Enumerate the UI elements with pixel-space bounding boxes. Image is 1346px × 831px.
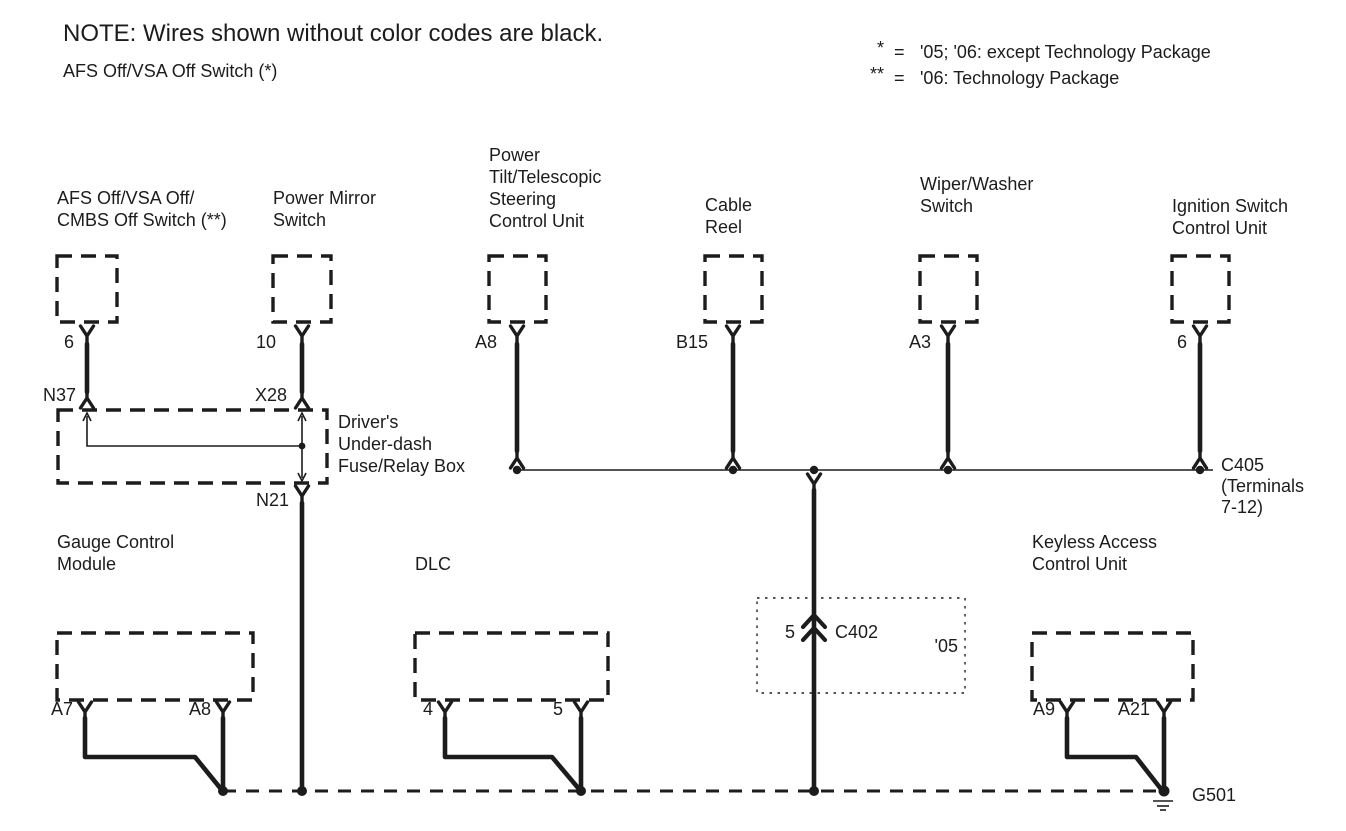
dlc-4-ground-wire — [445, 718, 579, 789]
ignition-pin-label: 6 — [1177, 332, 1187, 352]
ground-point-dot — [1159, 786, 1170, 797]
afs-pin-label: 6 — [64, 332, 74, 352]
legend-star-symbol: * — [877, 38, 884, 58]
subtitle-text: AFS Off/VSA Off Switch (*) — [63, 61, 277, 81]
gauge-label-line1: Gauge Control — [57, 532, 174, 552]
c405-label-line2: (Terminals — [1221, 476, 1304, 496]
component-ignition-switch-control-unit: Ignition Switch Control Unit 6 — [1172, 196, 1288, 468]
c402-name-label: C402 — [835, 622, 878, 642]
cable-reel-pin-label: B15 — [676, 332, 708, 352]
mirror-box — [273, 256, 331, 322]
cable-reel-label-line1: Cable — [705, 195, 752, 215]
legend: * = '05; '06: except Technology Package … — [870, 38, 1211, 88]
component-gauge-control-module: Gauge Control Module A7 A8 — [51, 532, 253, 789]
wiring-diagram-page: NOTE: Wires shown without color codes ar… — [0, 0, 1346, 831]
steering-label-line2: Tilt/Telescopic — [489, 167, 601, 187]
afs-switch-label-line2: CMBS Off Switch (**) — [57, 210, 227, 230]
ground-junction-dot-gauge — [218, 786, 228, 796]
n37-connector-label: N37 — [43, 385, 76, 405]
keyless-pin-a9-label: A9 — [1033, 699, 1055, 719]
mirror-label-line2: Switch — [273, 210, 326, 230]
c402-variant-label: '05 — [935, 636, 958, 656]
afs-pin-connector-icon — [81, 326, 94, 344]
legend-star-text: '05; '06: except Technology Package — [920, 42, 1211, 62]
keyless-pin-a21-label: A21 — [1118, 699, 1150, 719]
c405-label-line1: C405 — [1221, 455, 1264, 475]
dlc-pin-5-label: 5 — [553, 699, 563, 719]
wiper-label-line1: Wiper/Washer — [920, 174, 1033, 194]
wiper-label-line2: Switch — [920, 196, 973, 216]
legend-doublestar-equals: = — [894, 68, 905, 88]
dlc-pin-4-label: 4 — [423, 699, 433, 719]
steering-bus-connector-icon — [511, 450, 524, 468]
steering-box — [489, 256, 546, 322]
wiper-box — [920, 256, 977, 322]
cable-reel-label-line2: Reel — [705, 217, 742, 237]
bus-junction-dot-wiper — [944, 466, 952, 474]
wiper-pin-label: A3 — [909, 332, 931, 352]
bus-junction-dot-ignition — [1196, 466, 1204, 474]
bus-junction-dot-cable-reel — [729, 466, 737, 474]
keyless-label-line2: Control Unit — [1032, 554, 1127, 574]
component-steering-control-unit: Power Tilt/Telescopic Steering Control U… — [475, 145, 601, 468]
afs-switch-label-line1: AFS Off/VSA Off/ — [57, 188, 194, 208]
mirror-pin-connector-icon — [296, 326, 309, 344]
bus-junction-dot-branch — [810, 466, 818, 474]
gauge-a7-ground-wire — [85, 718, 221, 789]
component-dlc: DLC 4 5 — [415, 554, 608, 789]
n37-connector-icon — [81, 390, 94, 408]
n21-connector-label: N21 — [256, 490, 289, 510]
ignition-label-line1: Ignition Switch — [1172, 196, 1288, 216]
steering-label-line1: Power — [489, 145, 540, 165]
keyless-box — [1032, 633, 1193, 700]
steering-label-line4: Control Unit — [489, 211, 584, 231]
x28-connector-icon — [296, 390, 309, 408]
component-afs-switch: AFS Off/VSA Off/ CMBS Off Switch (**) 6 … — [43, 188, 227, 408]
c405-label-line3: 7-12) — [1221, 497, 1263, 517]
g501-label: G501 — [1192, 785, 1236, 805]
keyless-label-line1: Keyless Access — [1032, 532, 1157, 552]
keyless-a9-ground-wire — [1067, 718, 1161, 789]
afs-switch-box — [57, 256, 117, 322]
ground-junction-dot-branch — [809, 786, 819, 796]
component-cable-reel: Cable Reel B15 — [676, 195, 762, 468]
ignition-bus-connector-icon — [1194, 450, 1207, 468]
dlc-label: DLC — [415, 554, 451, 574]
cable-reel-pin-connector-icon — [727, 326, 740, 344]
x28-connector-label: X28 — [255, 385, 287, 405]
ignition-pin-connector-icon — [1194, 326, 1207, 344]
fuse-box-label-line1: Driver's — [338, 412, 398, 432]
legend-star-equals: = — [894, 42, 905, 62]
ground-bus: G501 — [218, 785, 1236, 810]
ground-junction-dot-n21 — [297, 786, 307, 796]
cable-reel-box — [705, 256, 762, 322]
fuse-box-label-line3: Fuse/Relay Box — [338, 456, 465, 476]
ignition-label-line2: Control Unit — [1172, 218, 1267, 238]
wiring-diagram: NOTE: Wires shown without color codes ar… — [0, 0, 1346, 831]
component-fuse-relay-box: Driver's Under-dash Fuse/Relay Box N21 — [58, 410, 465, 787]
c405-bus: C405 (Terminals 7-12) — [513, 455, 1304, 517]
wiper-pin-connector-icon — [942, 326, 955, 344]
mirror-pin-label: 10 — [256, 332, 276, 352]
legend-doublestar-text: '06: Technology Package — [920, 68, 1119, 88]
c402-branch: 5 C402 '05 — [757, 474, 965, 788]
steering-pin-connector-icon — [511, 326, 524, 344]
fuse-box-internal-junction-dot — [299, 443, 306, 450]
ground-junction-dot-dlc — [576, 786, 586, 796]
cable-reel-bus-connector-icon — [727, 450, 740, 468]
fuse-box-internal-wire-left — [87, 416, 302, 446]
component-keyless-access-control-unit: Keyless Access Control Unit A9 A21 — [1032, 532, 1193, 789]
gauge-pin-a7-label: A7 — [51, 699, 73, 719]
steering-pin-label: A8 — [475, 332, 497, 352]
gauge-box — [57, 633, 253, 700]
fuse-box-label-line2: Under-dash — [338, 434, 432, 454]
wiper-bus-connector-icon — [942, 450, 955, 468]
gauge-label-line2: Module — [57, 554, 116, 574]
steering-label-line3: Steering — [489, 189, 556, 209]
dlc-box — [415, 633, 608, 700]
header: NOTE: Wires shown without color codes ar… — [63, 20, 603, 81]
ground-symbol-icon — [1153, 801, 1173, 810]
component-power-mirror-switch: Power Mirror Switch 10 X28 — [255, 188, 376, 408]
gauge-pin-a8-label: A8 — [189, 699, 211, 719]
component-wiper-washer-switch: Wiper/Washer Switch A3 — [909, 174, 1033, 468]
ignition-box — [1172, 256, 1229, 322]
bus-junction-dot-steering — [513, 466, 521, 474]
c402-pin-label: 5 — [785, 622, 795, 642]
legend-doublestar-symbol: ** — [870, 64, 884, 84]
mirror-label-line1: Power Mirror — [273, 188, 376, 208]
note-text: NOTE: Wires shown without color codes ar… — [63, 20, 603, 47]
